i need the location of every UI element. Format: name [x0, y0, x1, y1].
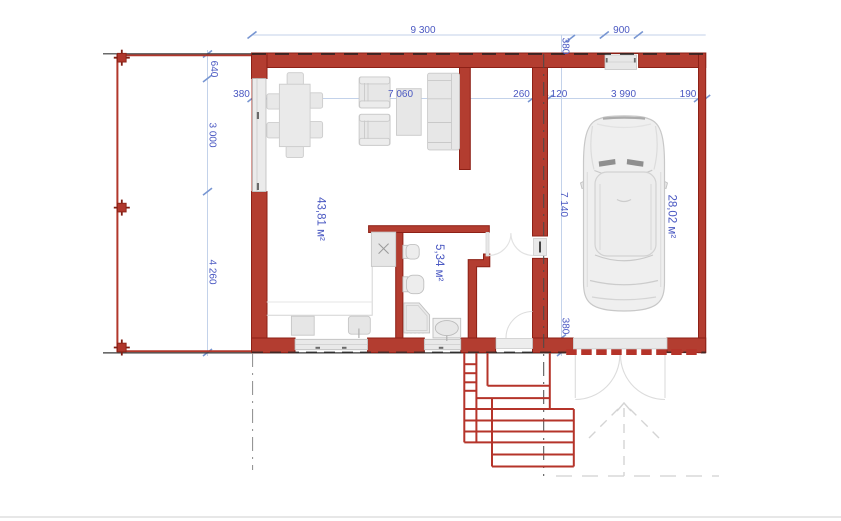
svg-text:120: 120 — [551, 89, 568, 100]
svg-text:640: 640 — [208, 61, 219, 78]
svg-text:7 060: 7 060 — [388, 89, 413, 100]
svg-text:380: 380 — [560, 318, 571, 335]
svg-text:5,34 м²: 5,34 м² — [433, 244, 445, 281]
svg-text:28,02 м²: 28,02 м² — [666, 194, 678, 238]
svg-text:43,81 м²: 43,81 м² — [314, 197, 326, 241]
svg-text:190: 190 — [680, 89, 697, 100]
svg-text:900: 900 — [613, 25, 630, 36]
svg-text:380: 380 — [560, 38, 571, 55]
svg-text:9 300: 9 300 — [410, 25, 435, 36]
svg-text:380: 380 — [233, 89, 250, 100]
svg-text:260: 260 — [513, 89, 530, 100]
svg-text:4 260: 4 260 — [207, 259, 218, 284]
svg-text:3 000: 3 000 — [207, 122, 218, 147]
svg-text:7 140: 7 140 — [558, 192, 569, 217]
svg-text:3 990: 3 990 — [611, 89, 636, 100]
